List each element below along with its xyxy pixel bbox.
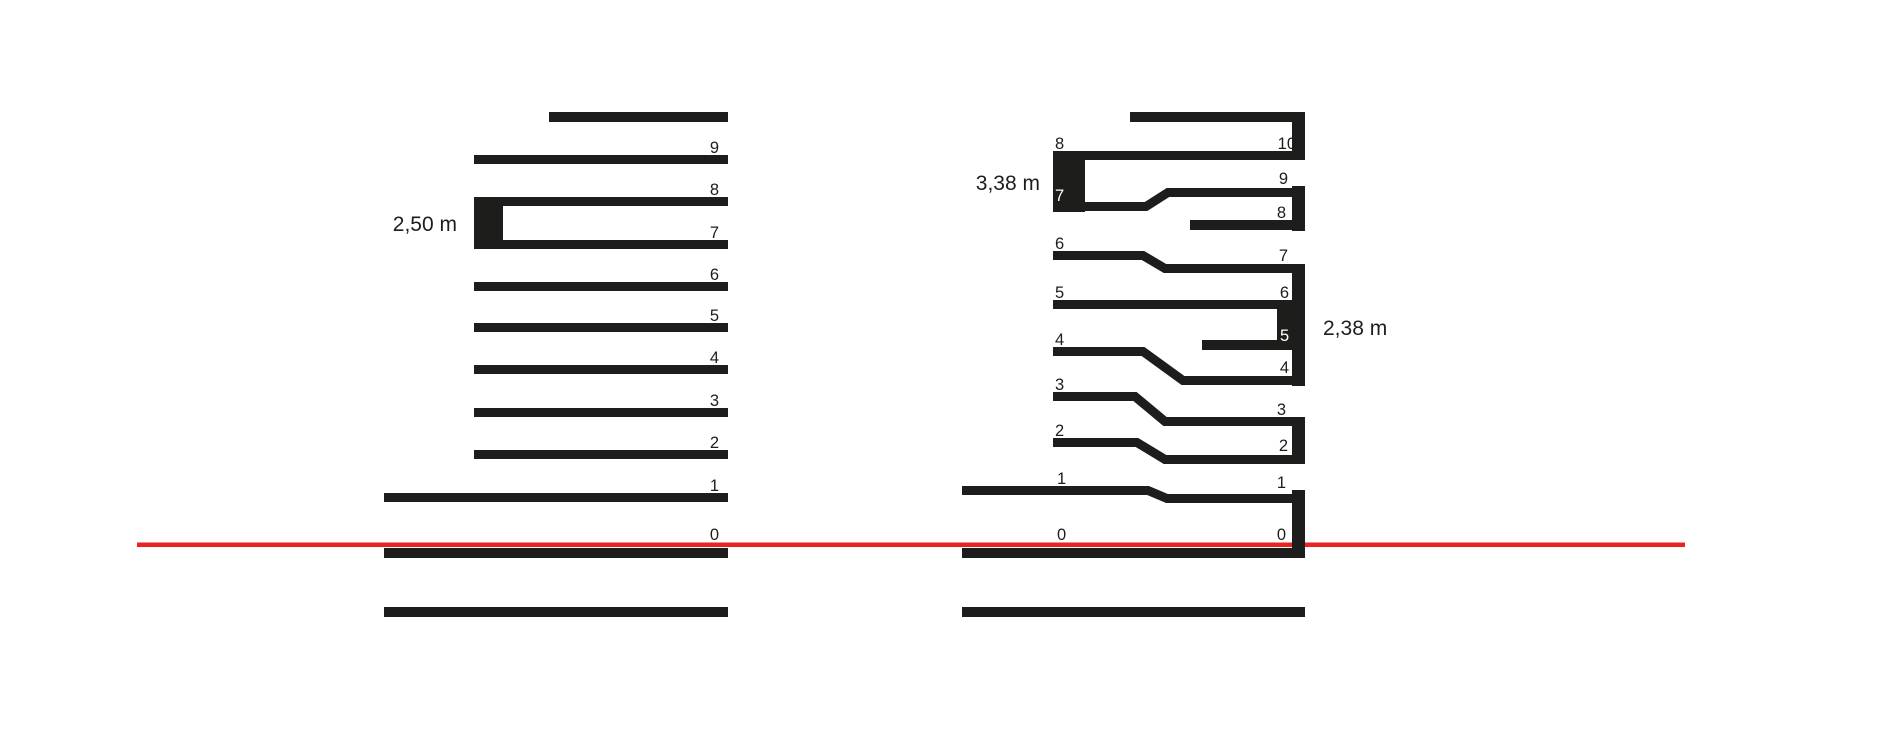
left-roof-slab — [549, 112, 728, 122]
right-right-floor-label-4: 4 — [1280, 359, 1289, 377]
right-right-floor-label-5: 5 — [1280, 327, 1289, 345]
right-right-floor-label-6: 6 — [1280, 284, 1289, 302]
left-storey-height-label: 2,50 m — [393, 213, 457, 236]
right-left-floor-label-7: 7 — [1055, 187, 1064, 205]
right-floor-slab-1-1 — [962, 491, 1305, 499]
left-floor-slab-1 — [384, 493, 728, 502]
right-right-floor-label-3: 3 — [1277, 401, 1286, 419]
right-left-floor-label-3: 3 — [1055, 376, 1064, 394]
right-floor-slab-2-2 — [1053, 443, 1305, 460]
right-left-floor-label-1: 1 — [1057, 470, 1066, 488]
left-floor-slab-8 — [474, 197, 728, 206]
left-floor-label-9: 9 — [710, 139, 719, 157]
left-floor-slab-3 — [474, 408, 728, 417]
right-right-floor-label-1: 1 — [1277, 474, 1286, 492]
right-left-floor-label-5: 5 — [1055, 284, 1064, 302]
right-left-floor-label-8: 8 — [1055, 135, 1064, 153]
left-storey-height-marker — [474, 197, 503, 249]
left-floor-slab-2 — [474, 450, 728, 459]
left-building-slabs — [384, 112, 728, 617]
left-floor-label-1: 1 — [710, 477, 719, 495]
left-floor-slab-5 — [474, 323, 728, 332]
left-floor-label-6: 6 — [710, 266, 719, 284]
right-right-storey-height-label: 2,38 m — [1323, 317, 1387, 340]
left-floor-slab-4 — [474, 365, 728, 374]
right-floor-slab-8-10 — [1053, 151, 1305, 160]
diagram-canvas: 9 8 7 6 5 4 3 2 1 0 2,50 m — [0, 0, 1900, 756]
right-floor-slab-4-4 — [1053, 352, 1305, 381]
left-floor-label-2: 2 — [710, 434, 719, 452]
left-floor-label-0: 0 — [710, 526, 719, 544]
right-left-floor-label-4: 4 — [1055, 331, 1064, 349]
right-right-floor-label-7: 7 — [1279, 247, 1288, 265]
right-floor-slab-0 — [962, 548, 1305, 558]
right-floor-stub-8 — [1190, 220, 1305, 230]
right-left-storey-height-label: 3,38 m — [976, 172, 1040, 195]
right-right-floor-label-8: 8 — [1277, 204, 1286, 222]
left-floor-label-7: 7 — [710, 224, 719, 242]
right-building-section: 8 6 5 4 3 2 1 0 10 9 8 7 6 4 3 2 1 0 3,3… — [962, 112, 1387, 617]
right-floor-slab-5-6 — [1053, 300, 1305, 309]
left-floor-label-4: 4 — [710, 349, 719, 367]
right-right-floor-label-0: 0 — [1277, 526, 1286, 544]
right-right-floor-label-9: 9 — [1279, 170, 1288, 188]
ground-datum-line — [137, 543, 1685, 548]
right-floor-stub-5 — [1202, 340, 1305, 350]
left-floor-label-3: 3 — [710, 392, 719, 410]
left-floor-slab-9 — [474, 155, 728, 164]
right-left-floor-label-6: 6 — [1055, 235, 1064, 253]
right-roof-slab — [1130, 112, 1305, 122]
left-floor-slab-6 — [474, 282, 728, 291]
right-floor-slab-7-9 — [1053, 193, 1305, 207]
left-floor-label-8: 8 — [710, 181, 719, 199]
right-left-floor-label-0: 0 — [1057, 526, 1066, 544]
left-floor-slab-0 — [384, 548, 728, 558]
right-right-floor-label-2: 2 — [1279, 437, 1288, 455]
right-left-floor-label-2: 2 — [1055, 422, 1064, 440]
left-floor-slab-7 — [474, 240, 728, 249]
left-building-section: 9 8 7 6 5 4 3 2 1 0 2,50 m — [384, 112, 728, 617]
right-right-floor-label-10: 10 — [1278, 135, 1296, 153]
right-floor-slab-3-3 — [1053, 397, 1305, 422]
right-floor-slab-6-7 — [1053, 256, 1305, 269]
right-basement-slab — [962, 607, 1305, 617]
left-floor-label-5: 5 — [710, 307, 719, 325]
split-level-section-diagram: 9 8 7 6 5 4 3 2 1 0 2,50 m — [0, 0, 1900, 756]
left-basement-slab — [384, 607, 728, 617]
